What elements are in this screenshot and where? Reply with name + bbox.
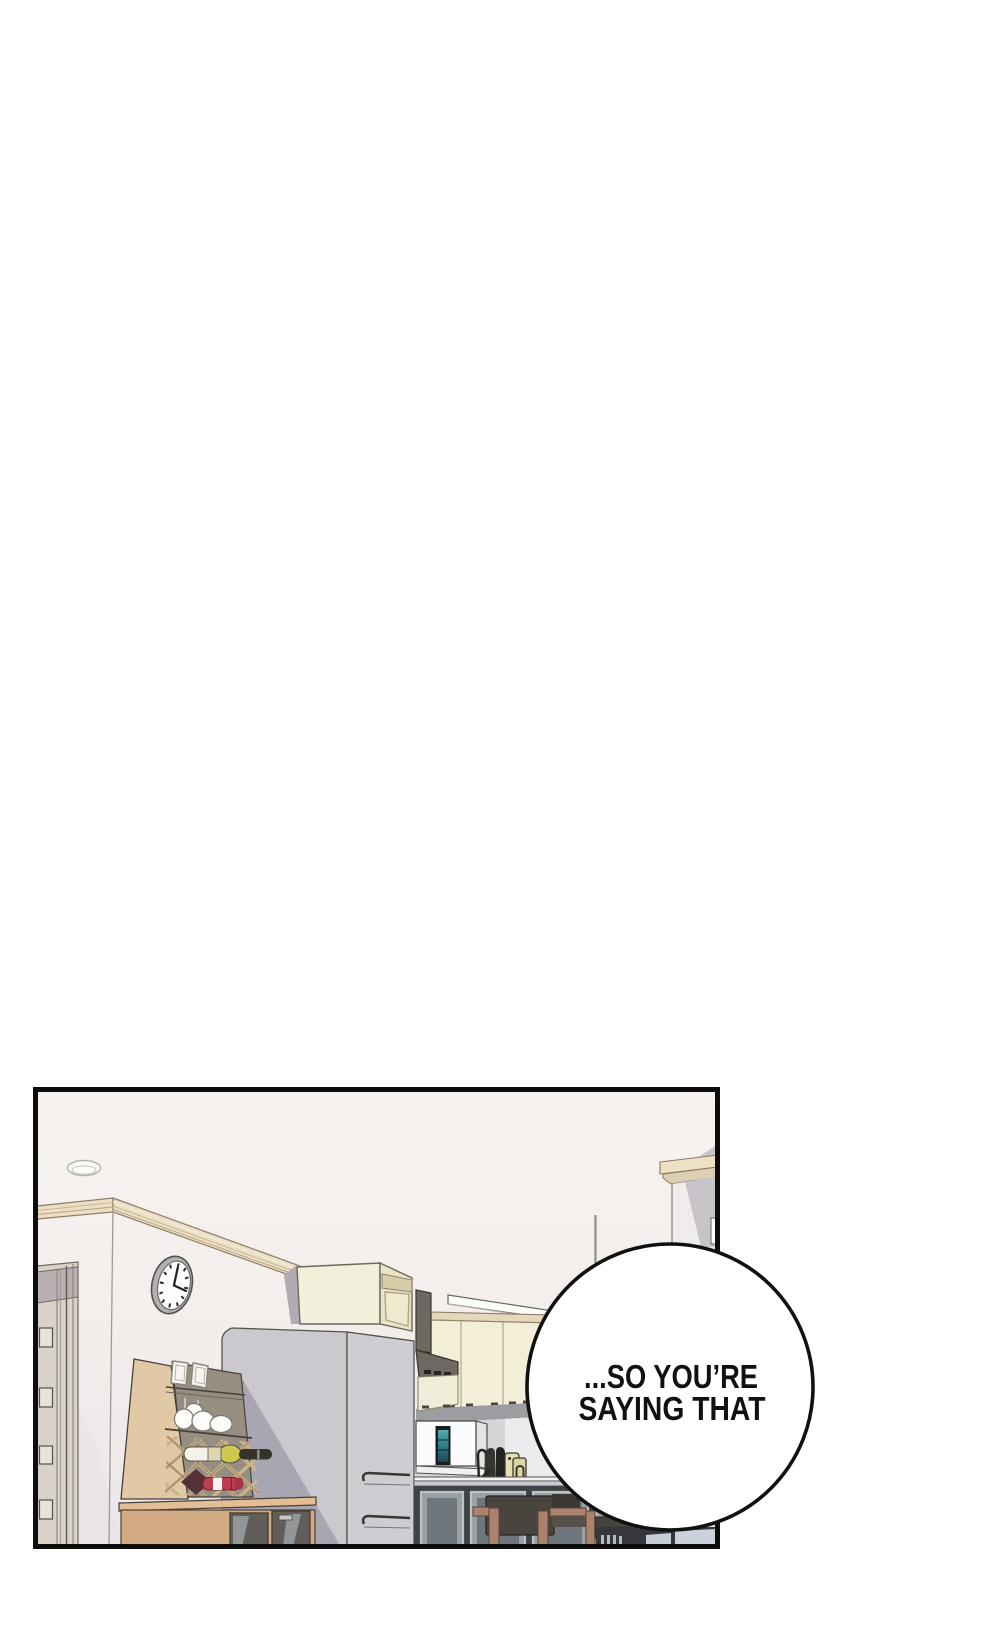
svg-text:SAYING THAT: SAYING THAT — [579, 1390, 766, 1427]
